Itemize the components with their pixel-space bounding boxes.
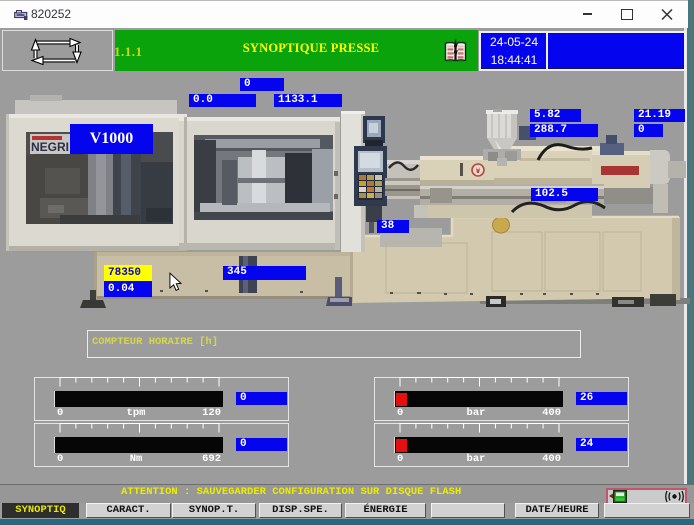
svg-text:NEGRI: NEGRI xyxy=(31,140,69,154)
